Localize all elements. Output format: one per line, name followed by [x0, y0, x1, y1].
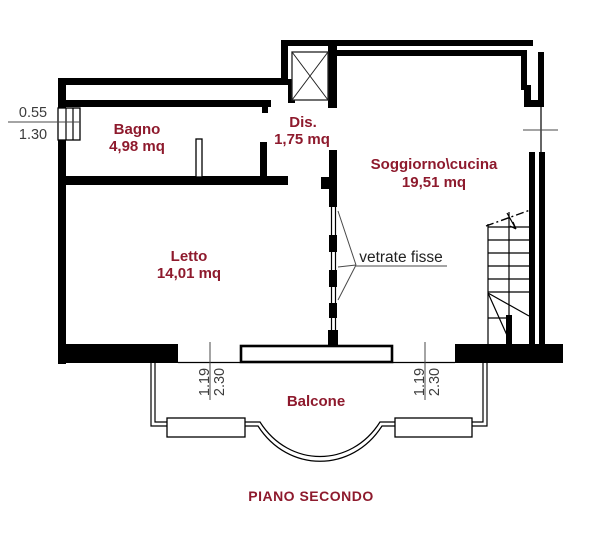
glass-wall-mullion-3	[329, 303, 337, 318]
bagno-letto-divider	[66, 176, 288, 185]
top-inner-wall-right	[337, 50, 527, 56]
door-leaf	[196, 139, 202, 177]
balcony-right-width: 1.19	[412, 368, 428, 396]
planter-box-right	[395, 418, 472, 437]
fixed-glazing-note: vetrate fisse	[359, 249, 443, 266]
letto-label: Letto	[171, 248, 208, 265]
bagno-label: Bagno	[114, 121, 161, 138]
corner-wall-a	[521, 50, 527, 90]
shaft-box	[292, 52, 328, 100]
right-wall-outer	[539, 152, 545, 345]
plan-title: PIANO SECONDO	[248, 488, 374, 504]
floor-plan-drawing: Bagno 4,98 mq Dis. 1,75 mq Soggiorno\cuc…	[0, 0, 609, 544]
balcony-left-height: 2.30	[212, 368, 228, 396]
bottom-wall-right	[455, 344, 563, 363]
glass-wall-tab	[321, 177, 329, 189]
left-wall-main	[58, 140, 66, 364]
stair-newel	[506, 315, 512, 345]
right-wall-inner	[529, 152, 535, 345]
glass-wall-mullion-2	[329, 270, 337, 287]
staircase	[486, 209, 533, 345]
window-symbol	[58, 108, 80, 140]
corner-wall-b	[524, 85, 531, 102]
bump-left-wall	[281, 40, 288, 84]
left-window-width: 0.55	[19, 105, 47, 121]
glass-wall-mullion-1	[329, 235, 337, 252]
bagno-dis-wall	[260, 142, 267, 182]
balcony-left-width: 1.19	[197, 368, 213, 396]
letto-area: 14,01 mq	[157, 265, 221, 282]
top-inner-wall	[66, 100, 271, 107]
bottom-wall-middle	[241, 346, 392, 362]
left-window-height: 1.30	[19, 127, 47, 143]
bagno-area: 4,98 mq	[109, 138, 165, 155]
soggiorno-area: 19,51 mq	[402, 174, 466, 191]
glass-wall-bottom-stub-over	[328, 330, 338, 346]
corner-wall-d	[538, 52, 544, 107]
soggiorno-label: Soggiorno\cucina	[371, 156, 498, 173]
top-outer-wall	[66, 78, 288, 85]
right-window	[523, 107, 558, 152]
left-wall-upper	[58, 78, 66, 108]
glass-wall-top-segment	[329, 150, 337, 207]
bottom-wall-left	[58, 344, 178, 363]
floor-plan: Bagno 4,98 mq Dis. 1,75 mq Soggiorno\cuc…	[0, 0, 609, 544]
planter-box-left	[167, 418, 245, 437]
dis-label: Dis.	[289, 114, 317, 131]
door-jamb-tab	[262, 107, 268, 113]
bump-top-wall	[281, 40, 533, 46]
balcony-right-height: 2.30	[427, 368, 443, 396]
dis-area: 1,75 mq	[274, 131, 330, 148]
shaft-right-wall	[328, 46, 337, 108]
balcone-label: Balcone	[287, 393, 345, 410]
